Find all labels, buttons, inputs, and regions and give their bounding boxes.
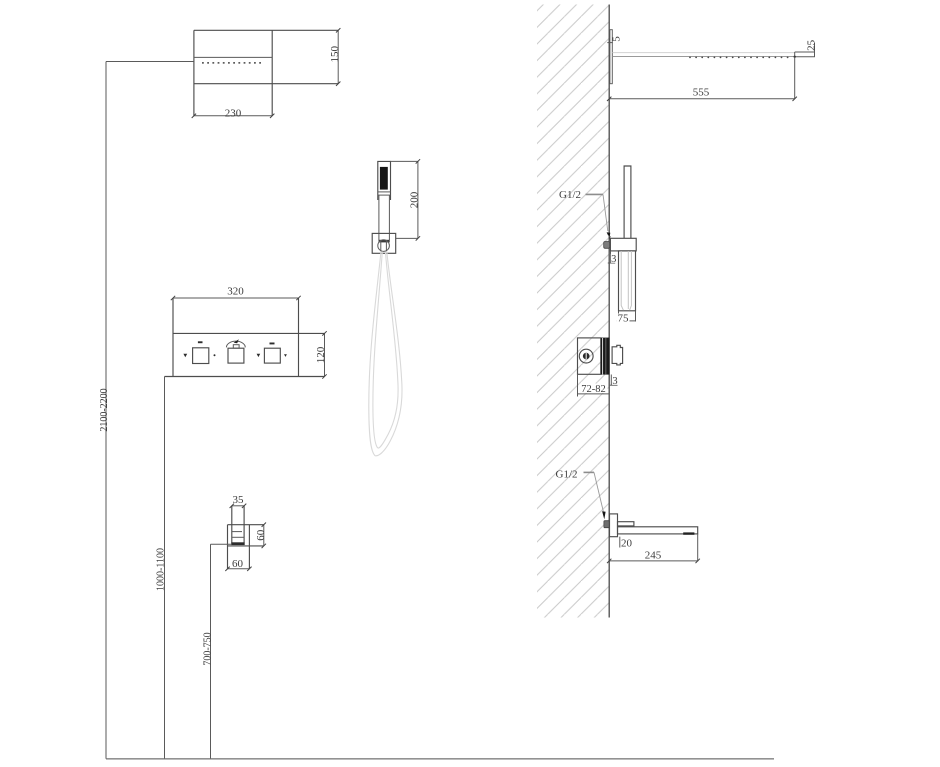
svg-text:3: 3 <box>612 376 617 387</box>
svg-text:75: 75 <box>618 312 630 324</box>
svg-text:G1/2: G1/2 <box>559 189 581 201</box>
svg-text:2100-2200: 2100-2200 <box>99 388 110 431</box>
svg-text:72-82: 72-82 <box>581 384 606 395</box>
svg-text:5: 5 <box>610 36 622 42</box>
svg-text:150: 150 <box>329 46 341 63</box>
svg-text:25: 25 <box>806 39 818 51</box>
svg-text:245: 245 <box>645 549 662 561</box>
svg-text:60: 60 <box>232 558 244 570</box>
svg-text:320: 320 <box>227 286 244 298</box>
svg-text:3: 3 <box>611 254 616 265</box>
svg-text:700-750: 700-750 <box>203 632 214 665</box>
svg-text:230: 230 <box>225 107 242 119</box>
svg-text:G1/2: G1/2 <box>556 468 578 480</box>
svg-text:35: 35 <box>233 494 245 506</box>
svg-text:20: 20 <box>621 537 633 549</box>
svg-text:200: 200 <box>409 191 421 208</box>
svg-text:555: 555 <box>693 86 710 98</box>
svg-text:1000-1100: 1000-1100 <box>156 548 167 591</box>
svg-text:120: 120 <box>315 346 327 363</box>
svg-text:60: 60 <box>255 529 267 541</box>
